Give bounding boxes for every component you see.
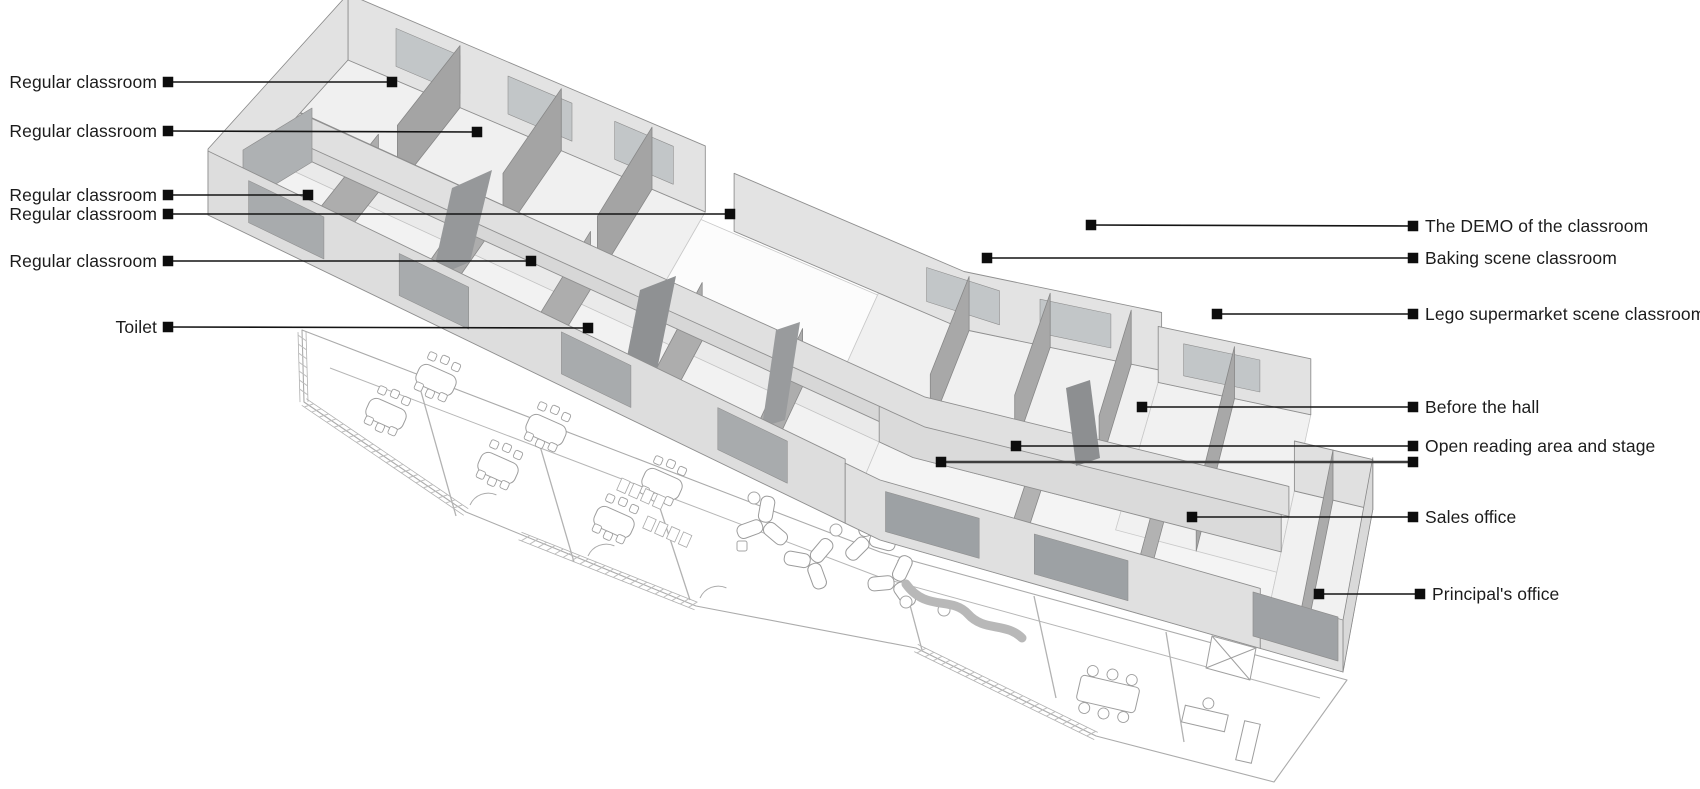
annotation-label: Regular classroom (0, 120, 157, 142)
annotation-label: Toilet (0, 316, 157, 338)
label-marker (1408, 512, 1419, 523)
label-marker (1408, 309, 1419, 320)
annotation-label: The DEMO of the classroom (1425, 215, 1648, 237)
label-marker (1408, 457, 1419, 468)
label-marker (163, 209, 174, 220)
cad-stool (830, 524, 842, 536)
annotation-label: Open reading area and stage (1425, 435, 1655, 457)
chair (440, 355, 451, 366)
target-marker (303, 190, 314, 201)
annotation-label: Sales office (1425, 506, 1516, 528)
target-marker (725, 209, 736, 220)
target-marker (1314, 589, 1325, 600)
target-marker (1212, 309, 1223, 320)
target-marker (1086, 220, 1097, 231)
annotation-label: Regular classroom (0, 203, 157, 225)
target-marker (387, 77, 398, 88)
annotation-label: Regular classroom (0, 250, 157, 272)
chair (550, 405, 561, 416)
annotation-label: Baking scene classroom (1425, 247, 1617, 269)
target-marker (472, 127, 483, 138)
cad-stool (748, 492, 760, 504)
label-marker (163, 77, 174, 88)
cad-stool (900, 596, 912, 608)
target-marker (1187, 512, 1198, 523)
cad-wall-edge (298, 332, 300, 402)
label-marker (163, 126, 174, 137)
cad-box (737, 541, 747, 551)
label-marker (1408, 402, 1419, 413)
label-marker (1408, 221, 1419, 232)
annotation-label: Principal's office (1432, 583, 1559, 605)
floor-plan-figure: Regular classroomRegular classroomRegula… (0, 0, 1700, 789)
target-marker (936, 457, 947, 468)
target-marker (1137, 402, 1148, 413)
annotation-label: Regular classroom (0, 71, 157, 93)
label-marker (163, 256, 174, 267)
chair (561, 412, 572, 423)
label-marker (1415, 589, 1426, 600)
target-marker (982, 253, 993, 264)
chair (537, 401, 548, 412)
leader-line (168, 327, 588, 328)
label-marker (1408, 441, 1419, 452)
annotation-label: Lego supermarket scene classroom (1425, 303, 1700, 325)
leader-line (1091, 225, 1413, 226)
target-marker (583, 323, 594, 334)
chair (666, 459, 677, 470)
target-marker (526, 256, 537, 267)
target-marker (1011, 441, 1022, 452)
label-marker (163, 190, 174, 201)
leader-line (168, 131, 477, 132)
axonometric-floor-plan-drawing (0, 0, 1700, 789)
chair (653, 455, 664, 466)
label-marker (1408, 253, 1419, 264)
chair (451, 362, 462, 373)
y-arm (867, 575, 894, 591)
label-marker (163, 322, 174, 333)
annotation-label: Before the hall (1425, 396, 1539, 418)
chair (427, 351, 438, 362)
